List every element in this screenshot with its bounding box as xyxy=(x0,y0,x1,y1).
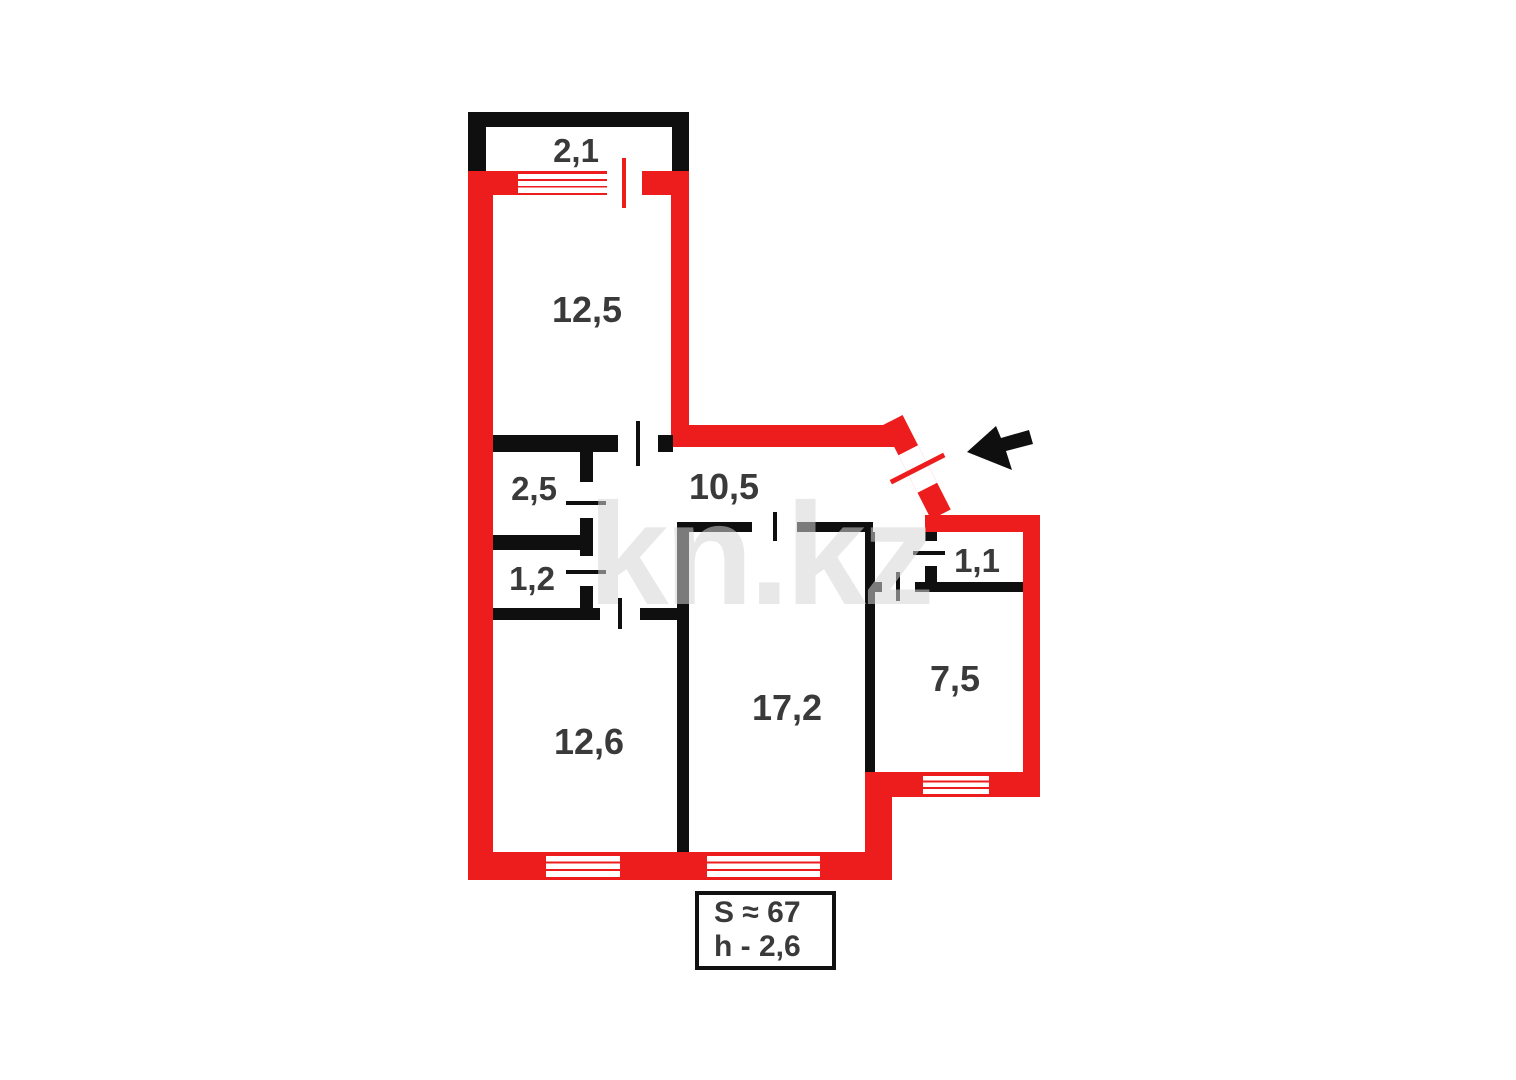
balcony-wall-top xyxy=(468,112,689,127)
window-room12-6 xyxy=(546,856,620,877)
window-balcony xyxy=(518,174,607,193)
balcony-wall-left xyxy=(468,112,486,173)
window-room17-2 xyxy=(707,856,820,877)
balcony-wall-right xyxy=(672,112,689,173)
entrance-wall-diagonal xyxy=(883,415,951,519)
room-1-2-area-label: 1,2 xyxy=(509,560,555,598)
wall-room17-2-right xyxy=(865,532,875,772)
room-12-6-area-label: 12,6 xyxy=(554,721,624,763)
floor-plan-canvas: kn.kz 2,1 12,5 2,5 10,5 1,2 1,1 12,6 17,… xyxy=(0,0,1516,1080)
outer-wall-left xyxy=(468,171,493,880)
outer-wall-room12-5-right xyxy=(671,171,689,447)
room-17-2-area-label: 17,2 xyxy=(752,687,822,729)
wall-room12-6-top xyxy=(493,608,677,620)
door-gap-room2-5 xyxy=(578,482,595,518)
door-tick-room7-5 xyxy=(896,572,900,601)
door-tick-room17-2 xyxy=(773,512,777,541)
room-1-1-area-label: 1,1 xyxy=(954,542,1000,580)
summary-box: S ≈ 67 h - 2,6 xyxy=(695,891,836,970)
wall-closets-right xyxy=(580,435,593,620)
room-7-5-area-label: 7,5 xyxy=(930,658,980,700)
ceiling-height-text: h - 2,6 xyxy=(714,930,832,964)
hallway-area-label: 10,5 xyxy=(689,466,759,508)
outer-wall-right xyxy=(1023,515,1040,797)
door-tick-room12-5 xyxy=(636,421,640,466)
door-tick-room12-6 xyxy=(618,598,622,629)
door-tick-room1-2 xyxy=(566,570,606,574)
outer-wall-bottom xyxy=(468,852,892,880)
room-12-5-area-label: 12,5 xyxy=(552,289,622,331)
entrance-arrow-icon xyxy=(955,414,1040,476)
outer-wall-hallway-top xyxy=(671,425,899,447)
wall-between-2-5-and-1-2 xyxy=(493,535,580,550)
total-area-text: S ≈ 67 xyxy=(714,896,832,930)
window-room7-5 xyxy=(923,776,989,794)
door-tick-room1-1 xyxy=(913,551,945,555)
wall-room17-2-left xyxy=(677,522,689,852)
room-2-5-area-label: 2,5 xyxy=(511,470,557,508)
balcony-area-label: 2,1 xyxy=(553,132,599,170)
door-tick-balcony xyxy=(622,158,626,208)
door-tick-room2-5 xyxy=(566,501,606,505)
